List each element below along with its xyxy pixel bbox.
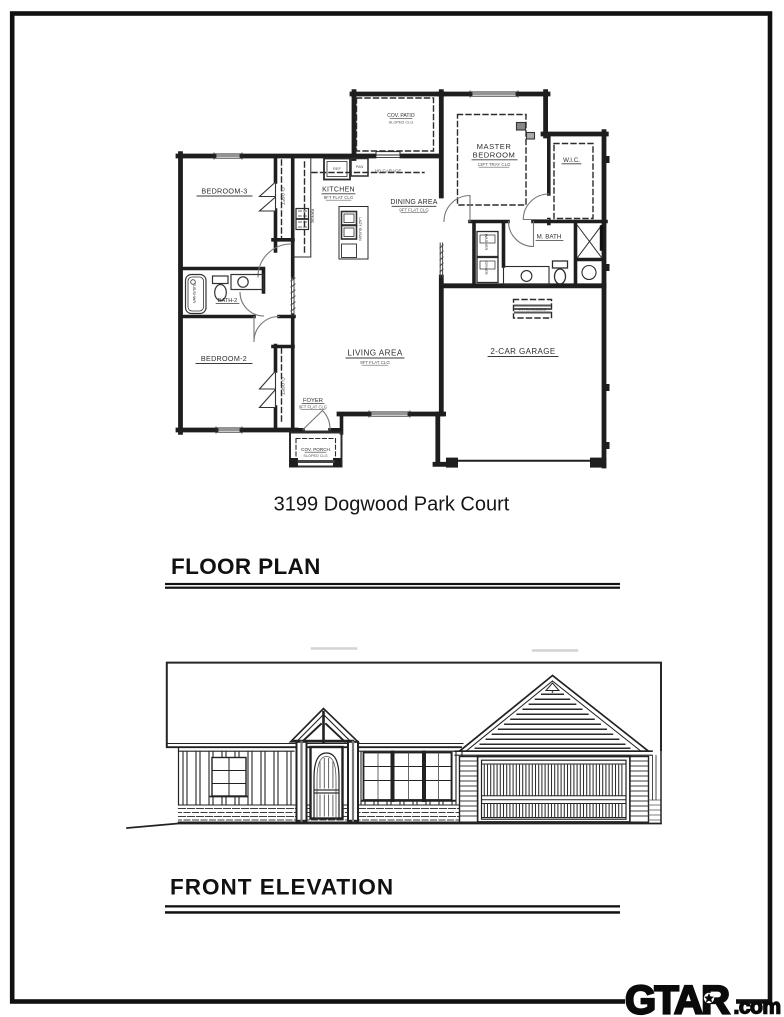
svg-text:TUB/SHWR: TUB/SHWR <box>192 283 196 304</box>
svg-text:BEDROOM: BEDROOM <box>473 151 516 160</box>
svg-text:FRONT ELEVATION: FRONT ELEVATION <box>170 875 394 900</box>
svg-text:DRYER: DRYER <box>484 261 488 274</box>
svg-text:WASHER: WASHER <box>484 234 488 251</box>
svg-text:LIVING AREA: LIVING AREA <box>347 349 403 358</box>
svg-text:9FT FLAT CLG: 9FT FLAT CLG <box>360 360 390 365</box>
svg-text:REF: REF <box>333 166 342 171</box>
svg-text:PAN: PAN <box>356 165 364 169</box>
svg-text:RANGE: RANGE <box>311 209 316 224</box>
svg-text:9FT FLAT CLG: 9FT FLAT CLG <box>324 195 354 200</box>
svg-text:.com: .com <box>734 996 781 1017</box>
svg-text:CLOSET: CLOSET <box>281 187 286 205</box>
svg-text:3199 Dogwood Park Court: 3199 Dogwood Park Court <box>274 493 510 515</box>
svg-text:BEDROOM-3: BEDROOM-3 <box>201 187 247 196</box>
svg-text:CLOSET: CLOSET <box>281 377 286 395</box>
svg-text:FLOOR PLAN: FLOOR PLAN <box>171 554 321 579</box>
svg-text:13FT TRAY CLG: 13FT TRAY CLG <box>478 162 511 167</box>
svg-text:GTAR: GTAR <box>625 979 730 1017</box>
svg-text:M. BATH: M. BATH <box>537 234 562 241</box>
svg-text:SLOPED CLG: SLOPED CLG <box>303 454 327 458</box>
svg-text:DINING AREA: DINING AREA <box>390 199 437 206</box>
svg-text:LAZY SUSAN: LAZY SUSAN <box>358 217 362 241</box>
svg-text:HD GARAGE: HD GARAGE <box>375 169 401 174</box>
svg-text:W.I.C.: W.I.C. <box>563 157 580 164</box>
svg-text:SLOPED CLG: SLOPED CLG <box>389 120 414 125</box>
svg-text:COV. PORCH: COV. PORCH <box>301 447 330 452</box>
svg-text:9FT FLAT CLG: 9FT FLAT CLG <box>299 405 327 410</box>
svg-text:2-CAR GARAGE: 2-CAR GARAGE <box>490 347 555 356</box>
svg-text:BEDROOM-2: BEDROOM-2 <box>201 354 247 363</box>
svg-text:9FT FLAT CLG: 9FT FLAT CLG <box>399 208 429 213</box>
svg-text:KITCHEN: KITCHEN <box>322 187 355 194</box>
svg-text:ATTIC ACCESS: ATTIC ACCESS <box>519 308 547 312</box>
